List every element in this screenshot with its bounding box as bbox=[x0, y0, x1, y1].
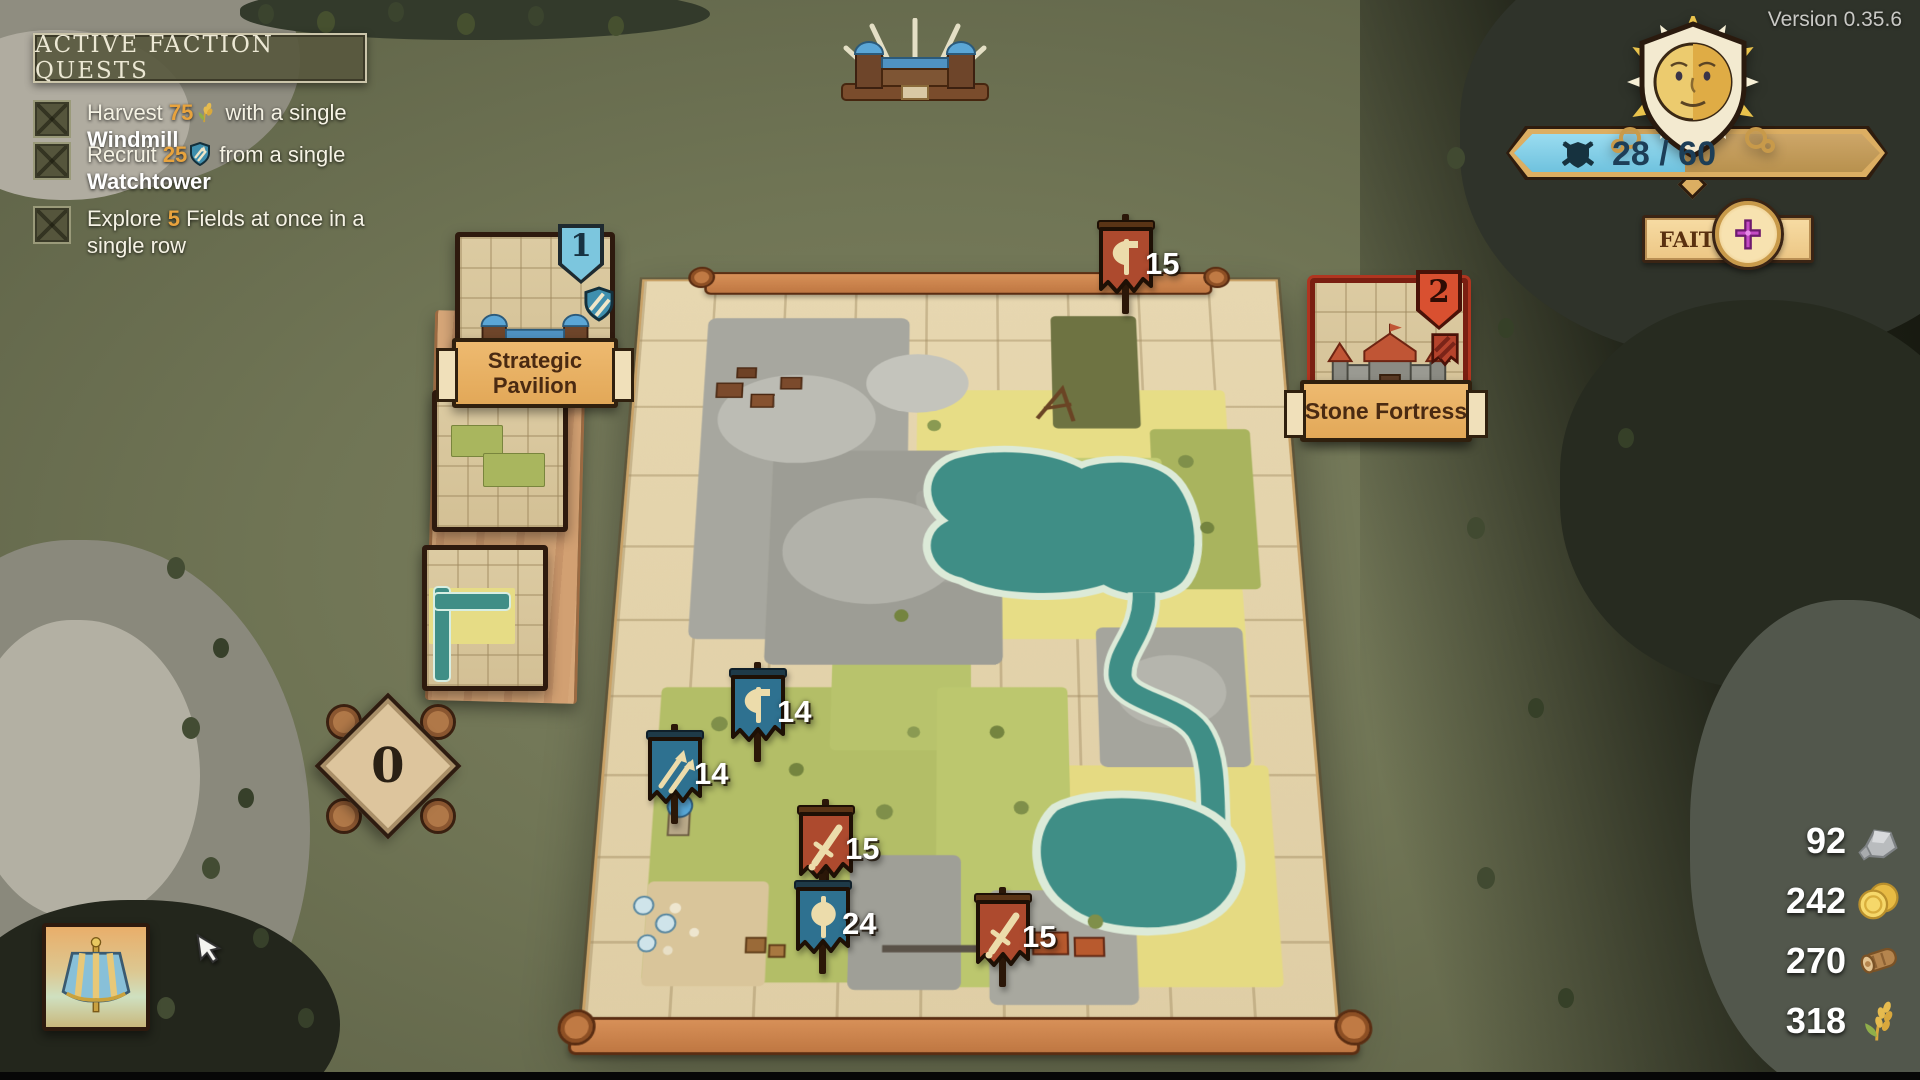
resource-wood: 270 bbox=[1786, 938, 1902, 984]
unit-count: 15 bbox=[845, 831, 879, 867]
battle-shield-icon bbox=[1556, 132, 1600, 176]
unit-count: 15 bbox=[1145, 246, 1179, 282]
recruit-shield-icon bbox=[189, 142, 211, 166]
game-board[interactable] bbox=[580, 279, 1340, 1035]
version-label: Version 0.35.6 bbox=[1768, 8, 1902, 32]
wood-icon bbox=[1856, 938, 1902, 984]
board-parchment bbox=[580, 279, 1340, 1035]
progress-label: 28 / 60 bbox=[1612, 135, 1716, 174]
unit-banner-red-axe[interactable]: 15 bbox=[1093, 212, 1159, 325]
unit-banner-blue-arrows[interactable]: 14 bbox=[642, 722, 708, 835]
unit-count: 14 bbox=[777, 694, 811, 730]
resource-coins: 242 bbox=[1786, 878, 1902, 924]
quest-text: Recruit 25 from a single Watchtower bbox=[87, 142, 387, 196]
wheat-icon bbox=[1856, 998, 1902, 1044]
quest-checkbox[interactable] bbox=[33, 142, 71, 180]
faith-cross-icon bbox=[1730, 216, 1766, 252]
board-tiles bbox=[583, 281, 1337, 1032]
map-pavilion-highlight[interactable] bbox=[830, 18, 1000, 123]
next-tile-card-river[interactable] bbox=[422, 545, 548, 691]
diamond-ornament bbox=[420, 798, 456, 834]
scattered-trees bbox=[0, 0, 12, 16]
wood-value: 270 bbox=[1786, 940, 1846, 982]
faith-medallion bbox=[1712, 198, 1784, 270]
pavilion-badge-number: 1 bbox=[570, 228, 592, 264]
unit-count: 24 bbox=[842, 906, 876, 942]
unit-count: 15 bbox=[1022, 919, 1056, 955]
quest-checkbox[interactable] bbox=[33, 206, 71, 244]
quest-checkbox[interactable] bbox=[33, 100, 71, 138]
resource-wheat: 318 bbox=[1786, 998, 1902, 1044]
stone-value: 92 bbox=[1806, 820, 1846, 862]
quest-row-explore: Explore 5 Fields at once in a single row bbox=[33, 206, 427, 260]
stone-icon bbox=[1856, 818, 1902, 864]
fortress-badge-number: 2 bbox=[1428, 274, 1450, 310]
quest-text: Explore 5 Fields at once in a single row bbox=[87, 206, 427, 260]
progress-content: 28 / 60 bbox=[1556, 128, 1816, 180]
board-rail-bottom bbox=[567, 1017, 1360, 1055]
mouse-cursor bbox=[195, 930, 228, 972]
resource-stone: 92 bbox=[1806, 818, 1902, 864]
pavilion-faction-shield-icon bbox=[583, 284, 615, 324]
next-tile-card-grass[interactable] bbox=[432, 390, 568, 532]
tile-stack-count: 0 bbox=[371, 738, 404, 794]
wheat-value: 318 bbox=[1786, 1000, 1846, 1042]
rail-curl-top-right bbox=[1203, 267, 1231, 288]
coins-icon bbox=[1856, 878, 1902, 924]
unit-count: 14 bbox=[694, 756, 728, 792]
unit-banner-blue-double-axe[interactable]: 24 bbox=[790, 872, 856, 985]
tile-stack-counter[interactable]: 0 bbox=[320, 698, 456, 834]
grass-tile-segment bbox=[483, 453, 545, 487]
unit-banner-red-sword-2[interactable]: 15 bbox=[970, 885, 1036, 998]
pavilion-card-label: StrategicPavilion bbox=[452, 338, 618, 408]
quest-row-recruit: Recruit 25 from a single Watchtower bbox=[33, 142, 387, 196]
fortress-card-label: Stone Fortress bbox=[1300, 380, 1472, 442]
standard-banner-illustration bbox=[54, 935, 138, 1019]
fortress-faction-flag-icon bbox=[1430, 330, 1460, 372]
unit-banner-blue-axe[interactable]: 14 bbox=[725, 660, 791, 773]
river-segment-horizontal bbox=[435, 594, 509, 609]
letterbox-strip bbox=[0, 1072, 1920, 1080]
quest-panel-title: ACTIVE FACTION QUESTS bbox=[33, 33, 367, 83]
wheat-icon bbox=[195, 102, 217, 124]
faction-standard-card[interactable] bbox=[42, 923, 150, 1031]
coins-value: 242 bbox=[1786, 880, 1846, 922]
game-screen: 15 14 14 bbox=[0, 0, 1920, 1080]
